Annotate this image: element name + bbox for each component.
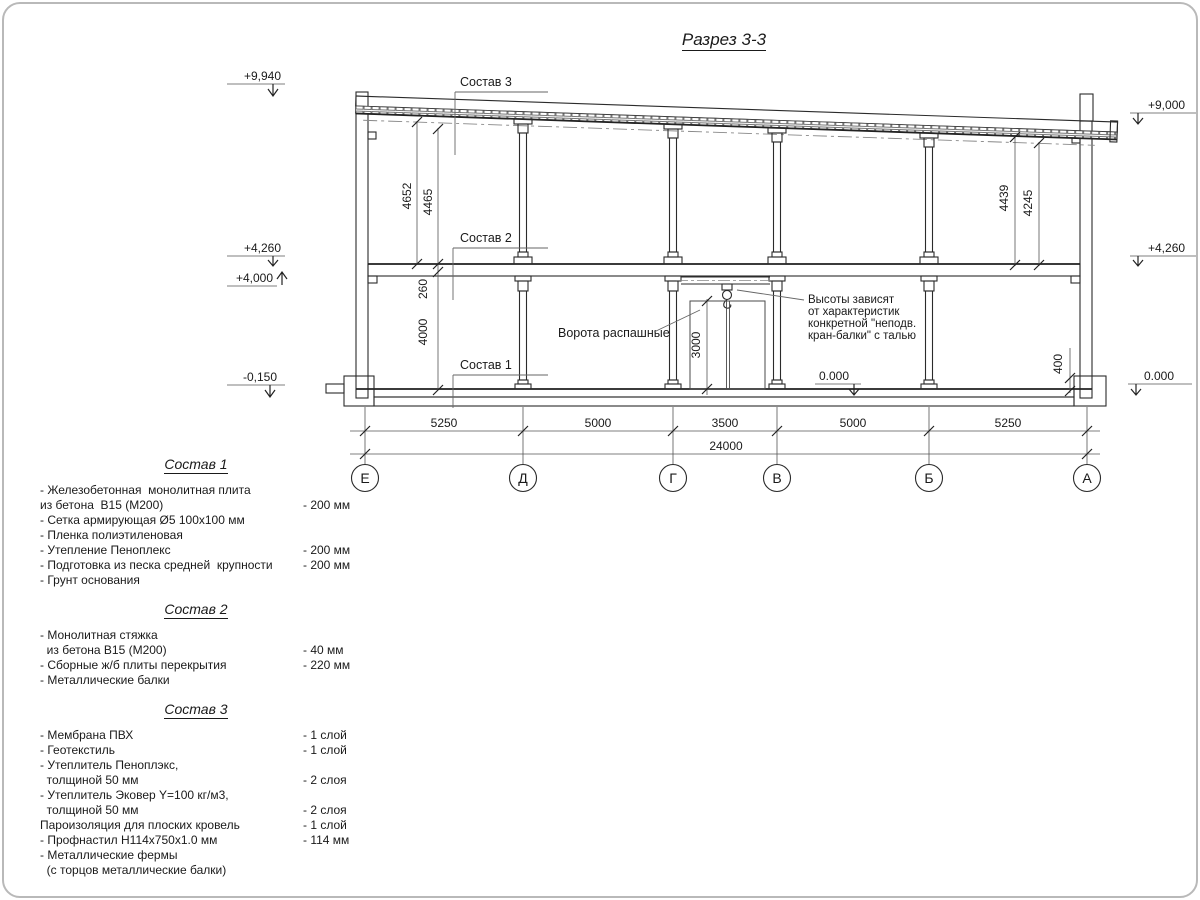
building-structure	[326, 92, 1118, 406]
svg-text:кран-балки" с талью: кран-балки" с талью	[808, 330, 916, 342]
crane-beam	[676, 277, 775, 308]
hoist-hook	[722, 284, 732, 308]
roof-profiled-deck	[355, 106, 1117, 139]
legend-section-1: Состав 1 - Железобетонная монолитная пли…	[40, 455, 372, 588]
dim-gate-height: 3000	[689, 331, 703, 358]
dim-slab-thickness: 260	[416, 279, 430, 299]
dim-span-5: 5250	[995, 416, 1022, 430]
dim-span-4: 5000	[840, 416, 867, 430]
svg-text:+4,260: +4,260	[1148, 241, 1185, 255]
legend-heading-1: Состав 1	[40, 455, 352, 473]
legend-line: - Профнастил Н114х750х1.0 мм- 114 мм	[40, 833, 372, 848]
legend-line: - Геотекстиль- 1 слой	[40, 743, 372, 758]
svg-text:0.000: 0.000	[1144, 369, 1174, 383]
left-footing	[344, 376, 374, 406]
elevation-left-top: +9,940	[227, 69, 285, 96]
dim-plinth: 400	[1051, 354, 1065, 374]
legend-line: - Сборные ж/б плиты перекрытия- 220 мм	[40, 658, 372, 673]
left-footing-ledge	[326, 384, 344, 393]
elevation-left-ground: -0,150	[227, 370, 285, 397]
elevation-right-ground: 0.000	[1128, 369, 1192, 395]
roof-assembly	[355, 95, 1117, 146]
elevation-right-top: +9,000	[1130, 98, 1196, 124]
axis-label-V: В	[772, 470, 781, 486]
vertical-dimensions: 4652 4465 260 4000 4439 4245 3000 400	[400, 117, 1075, 396]
legend-line: толщиной 50 мм- 2 слоя	[40, 803, 372, 818]
dim-span-3: 3500	[712, 416, 739, 430]
legend-line: - Пленка полиэтиленовая	[40, 528, 372, 543]
legend-line: - Утеплитель Эковер Y=100 кг/м3,	[40, 788, 372, 803]
right-parapet	[1080, 94, 1093, 121]
svg-text:+4,260: +4,260	[244, 241, 281, 255]
dim-span-2: 5000	[585, 416, 612, 430]
legend-line: толщиной 50 мм- 2 слоя	[40, 773, 372, 788]
svg-text:конкретной "неподв.: конкретной "неподв.	[808, 318, 916, 330]
dim-left-inner: 4465	[421, 188, 435, 215]
svg-text:Состав 1: Состав 1	[460, 358, 512, 372]
svg-text:Высоты зависят: Высоты зависят	[808, 294, 895, 306]
axis-label-D: Д	[518, 470, 528, 486]
ground-slab	[356, 389, 1092, 406]
right-wall	[1080, 121, 1092, 398]
materials-legend: Состав 1 - Железобетонная монолитная пли…	[40, 455, 372, 890]
svg-text:+4,000: +4,000	[236, 271, 273, 285]
legend-line: - Металлические балки	[40, 673, 372, 688]
legend-line: - Сетка армирующая Ø5 100х100 мм	[40, 513, 372, 528]
column-G	[664, 124, 682, 389]
svg-text:+9,940: +9,940	[244, 69, 281, 83]
dim-storey-height: 4000	[416, 318, 430, 345]
legend-line: - Утепление Пеноплекс- 200 мм	[40, 543, 372, 558]
left-wall	[356, 92, 368, 398]
legend-line: - Металлические фермы	[40, 848, 372, 863]
drawing-sheet: Разрез 3-3	[0, 0, 1200, 900]
columns	[514, 119, 938, 389]
legend-line: - Железобетонная монолитная плита	[40, 483, 372, 498]
svg-text:от характеристик: от характеристик	[808, 306, 900, 318]
axis-label-B: Б	[924, 470, 933, 486]
elevation-left-floor-bottom: +4,000	[227, 271, 287, 286]
left-wall-corbel	[368, 132, 376, 139]
horizontal-dimensions: 5250 5000 3500 5000 5250 24000	[350, 407, 1100, 464]
legend-line: из бетона В15 (М200)- 200 мм	[40, 498, 372, 513]
svg-text:Состав 2: Состав 2	[460, 231, 512, 245]
dim-right-inner: 4245	[1021, 189, 1035, 216]
dim-total: 24000	[709, 439, 743, 453]
callout-gates: Ворота распашные	[558, 310, 700, 340]
callout-sostav1: Состав 1	[453, 358, 548, 408]
column-B	[920, 133, 938, 389]
legend-line: - Монолитная стяжка	[40, 628, 372, 643]
elevation-right-floor: +4,260	[1130, 241, 1196, 266]
svg-text:Состав 3: Состав 3	[460, 75, 512, 89]
legend-line: - Грунт основания	[40, 573, 372, 588]
legend-line: Пароизоляция для плоских кровель- 1 слой	[40, 818, 372, 833]
legend-section-3: Состав 3 - Мембрана ПВХ- 1 слой - Геотек…	[40, 700, 372, 878]
svg-text:+9,000: +9,000	[1148, 98, 1185, 112]
legend-line: из бетона В15 (М200)- 40 мм	[40, 643, 372, 658]
legend-line: - Утеплитель Пеноплэкс,	[40, 758, 372, 773]
right-footing	[1074, 376, 1106, 406]
svg-text:Ворота распашные: Ворота распашные	[558, 326, 670, 340]
callout-sostav2: Состав 2	[453, 231, 548, 300]
legend-line: - Мембрана ПВХ- 1 слой	[40, 728, 372, 743]
column-D	[514, 119, 532, 389]
axis-label-G: Г	[669, 470, 677, 486]
svg-text:-0,150: -0,150	[243, 370, 277, 384]
axis-bubbles: Е Д Г В Б А	[352, 465, 1101, 492]
legend-line: (с торцов металлические балки)	[40, 863, 372, 878]
elevation-left-floor-top: +4,260	[227, 241, 285, 266]
elevation-mid-ground: 0.000	[815, 369, 861, 395]
dim-left-outer: 4652	[400, 182, 414, 209]
legend-heading-3: Состав 3	[40, 700, 352, 718]
axis-label-A: А	[1082, 470, 1092, 486]
legend-section-2: Состав 2 - Монолитная стяжка из бетона В…	[40, 600, 372, 688]
column-V	[768, 128, 786, 389]
svg-text:0.000: 0.000	[819, 369, 849, 383]
callout-crane-note: Высоты зависят от характеристик конкретн…	[737, 290, 916, 342]
dim-right-outer: 4439	[997, 184, 1011, 211]
dim-span-1: 5250	[431, 416, 458, 430]
legend-heading-2: Состав 2	[40, 600, 352, 618]
legend-line: - Подготовка из песка средней крупности-…	[40, 558, 372, 573]
